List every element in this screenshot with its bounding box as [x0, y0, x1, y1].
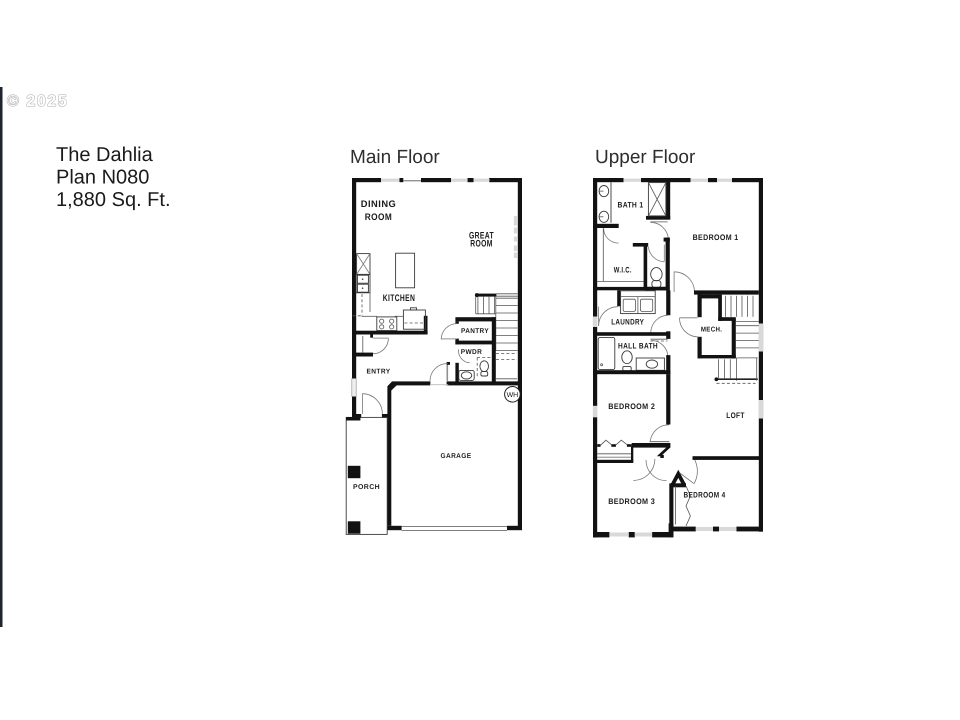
svg-text:PANTRY: PANTRY	[461, 328, 489, 335]
svg-text:BEDROOM 1: BEDROOM 1	[693, 233, 739, 242]
svg-text:1,880 Sq. Ft.: 1,880 Sq. Ft.	[56, 189, 171, 211]
svg-text:PORCH: PORCH	[353, 484, 380, 491]
svg-text:MECH.: MECH.	[701, 327, 723, 334]
svg-text:GARAGE: GARAGE	[441, 453, 472, 460]
svg-text:W.I.C.: W.I.C.	[614, 266, 632, 275]
svg-text:WH: WH	[507, 392, 519, 399]
svg-text:BEDROOM 3: BEDROOM 3	[608, 497, 655, 506]
svg-text:BEDROOM 2: BEDROOM 2	[608, 402, 655, 411]
svg-text:KITCHEN: KITCHEN	[383, 293, 416, 304]
svg-text:DINING: DINING	[361, 199, 397, 210]
svg-text:HALL BATH: HALL BATH	[618, 342, 658, 351]
svg-text:ROOM: ROOM	[365, 212, 393, 223]
svg-text:Upper Floor: Upper Floor	[595, 147, 696, 168]
svg-text:ENTRY: ENTRY	[367, 369, 391, 376]
svg-text:BATH 1: BATH 1	[618, 200, 644, 209]
svg-text:ROOM: ROOM	[470, 239, 493, 250]
svg-text:© 2025: © 2025	[7, 93, 68, 110]
svg-text:The Dahlia: The Dahlia	[56, 144, 154, 166]
svg-text:Plan N080: Plan N080	[56, 167, 149, 189]
svg-text:PWDR: PWDR	[461, 349, 483, 356]
svg-text:LAUNDRY: LAUNDRY	[611, 318, 644, 327]
svg-text:BEDROOM 4: BEDROOM 4	[684, 491, 726, 500]
svg-text:LOFT: LOFT	[726, 411, 745, 420]
svg-text:Main Floor: Main Floor	[350, 147, 440, 168]
